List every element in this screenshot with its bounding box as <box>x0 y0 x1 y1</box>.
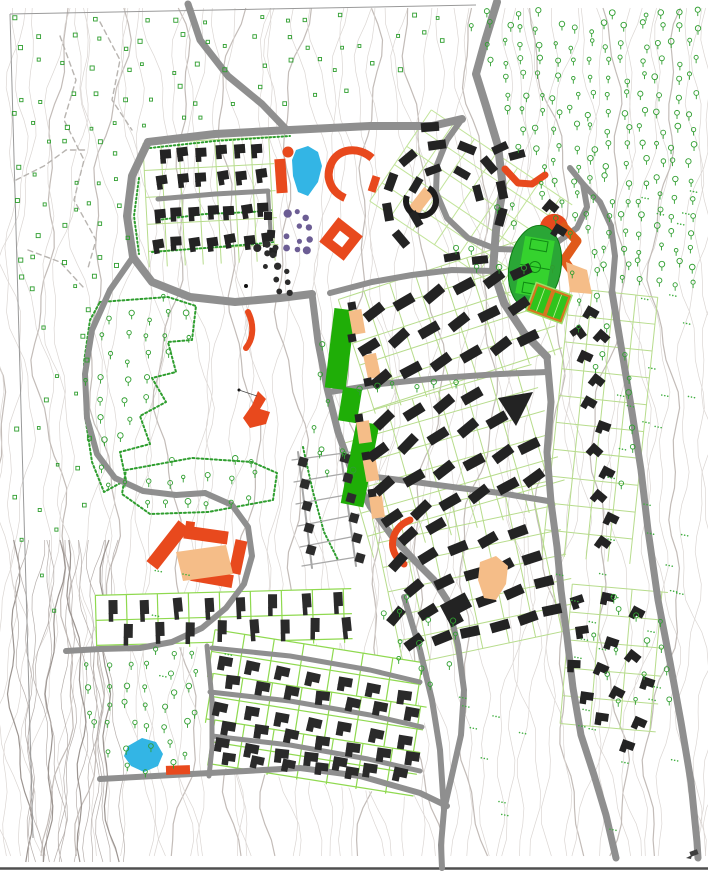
arc-building <box>246 312 252 348</box>
zoneB-peach <box>369 495 385 519</box>
dirt-trail <box>100 22 132 130</box>
chevron-building <box>505 169 545 184</box>
corner-marker <box>686 855 692 859</box>
dirt-trail <box>28 250 84 288</box>
drawing-sheet <box>0 0 708 882</box>
kiosk-building <box>166 765 190 775</box>
road-nw-top <box>148 119 462 142</box>
pond-north <box>292 146 322 196</box>
slope-dashes <box>459 696 526 816</box>
tower-building-dot <box>283 147 294 158</box>
slope-dashes <box>641 190 697 300</box>
purple-trees <box>283 209 313 254</box>
road-east-bypass <box>612 292 698 858</box>
nw-row <box>154 203 268 224</box>
sheet-border-left <box>10 14 33 838</box>
survey-leader <box>239 390 257 396</box>
trees-nw-wild <box>12 13 444 291</box>
site-plan-canvas[interactable] <box>0 0 708 882</box>
nw-row <box>160 144 263 164</box>
school-annex <box>185 521 195 531</box>
u-building <box>329 150 372 198</box>
road-entry-nw <box>188 4 287 130</box>
trees-west-strip <box>13 308 91 612</box>
peach-terrace <box>566 262 592 294</box>
trees-mid-park <box>123 456 257 510</box>
